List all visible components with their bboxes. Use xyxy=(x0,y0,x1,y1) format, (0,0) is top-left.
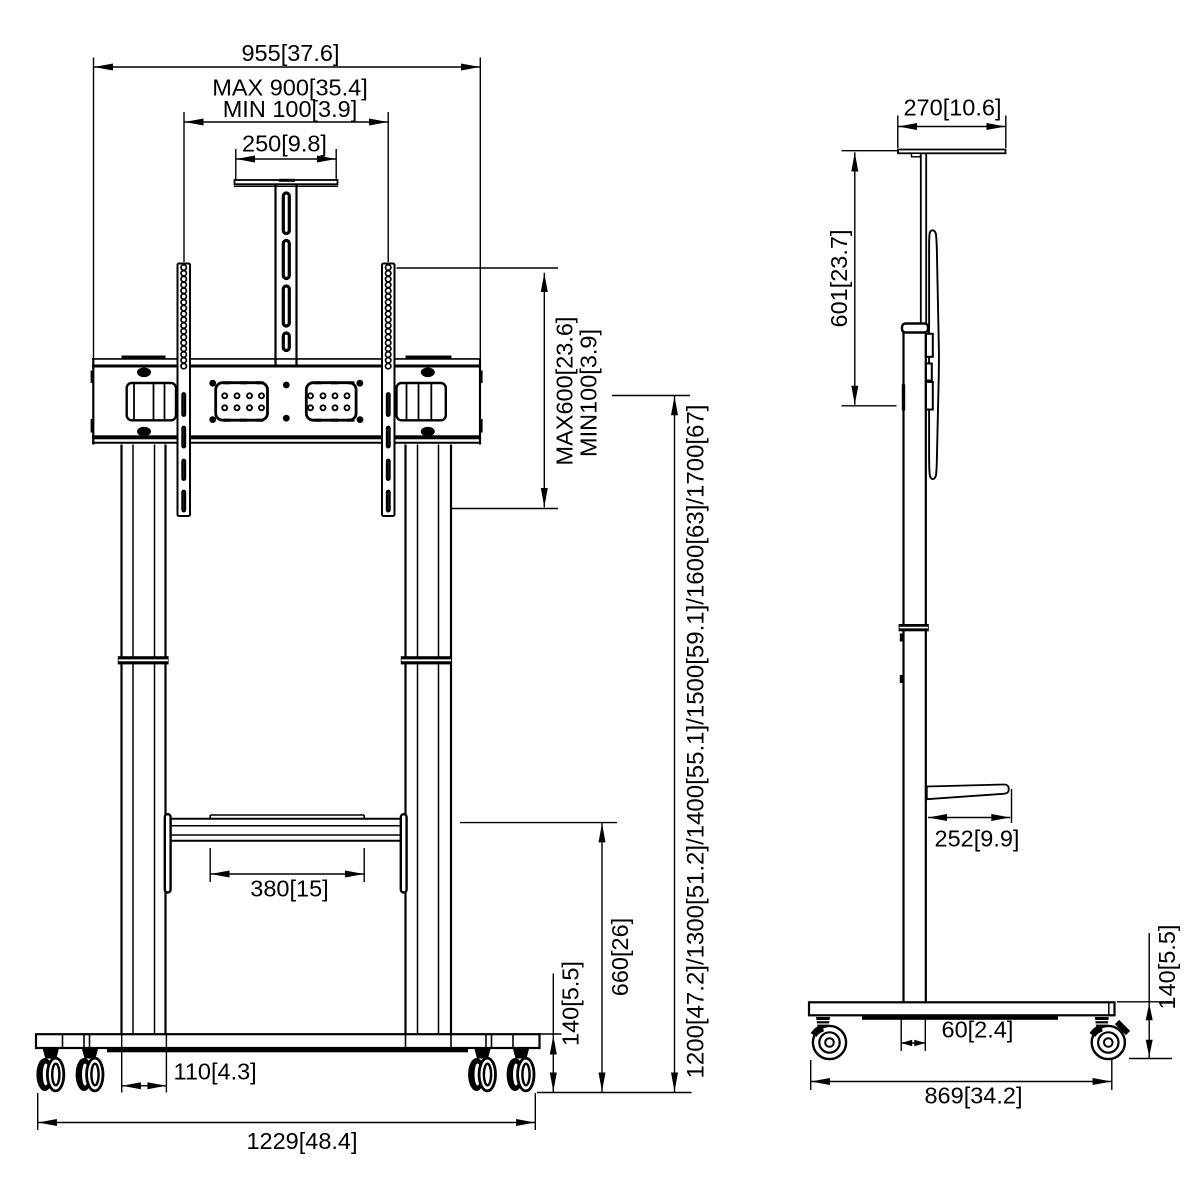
svg-text:140[5.5]: 140[5.5] xyxy=(558,961,584,1046)
svg-text:270[10.6]: 270[10.6] xyxy=(903,95,1001,121)
svg-text:60[2.4]: 60[2.4] xyxy=(942,1017,1014,1043)
svg-text:140[5.5]: 140[5.5] xyxy=(1154,925,1180,1010)
svg-text:250[9.8]: 250[9.8] xyxy=(242,131,327,157)
svg-text:380[15]: 380[15] xyxy=(250,876,328,902)
svg-text:MIN100[3.9]: MIN100[3.9] xyxy=(576,329,602,457)
svg-text:1229[48.4]: 1229[48.4] xyxy=(246,1128,357,1154)
svg-text:660[26]: 660[26] xyxy=(607,918,633,996)
svg-text:MAX600[23.6]: MAX600[23.6] xyxy=(552,317,578,466)
svg-text:252[9.9]: 252[9.9] xyxy=(935,826,1020,852)
svg-text:110[4.3]: 110[4.3] xyxy=(174,1059,257,1085)
svg-text:955[37.6]: 955[37.6] xyxy=(241,40,339,66)
svg-text:601[23.7]: 601[23.7] xyxy=(826,229,852,327)
svg-text:869[34.2]: 869[34.2] xyxy=(924,1083,1022,1109)
svg-text:1200[47.2]/1300[51.2]/1400[55.: 1200[47.2]/1300[51.2]/1400[55.1]/1500[59… xyxy=(683,405,710,1079)
svg-text:MIN 100[3.9]: MIN 100[3.9] xyxy=(223,96,358,122)
